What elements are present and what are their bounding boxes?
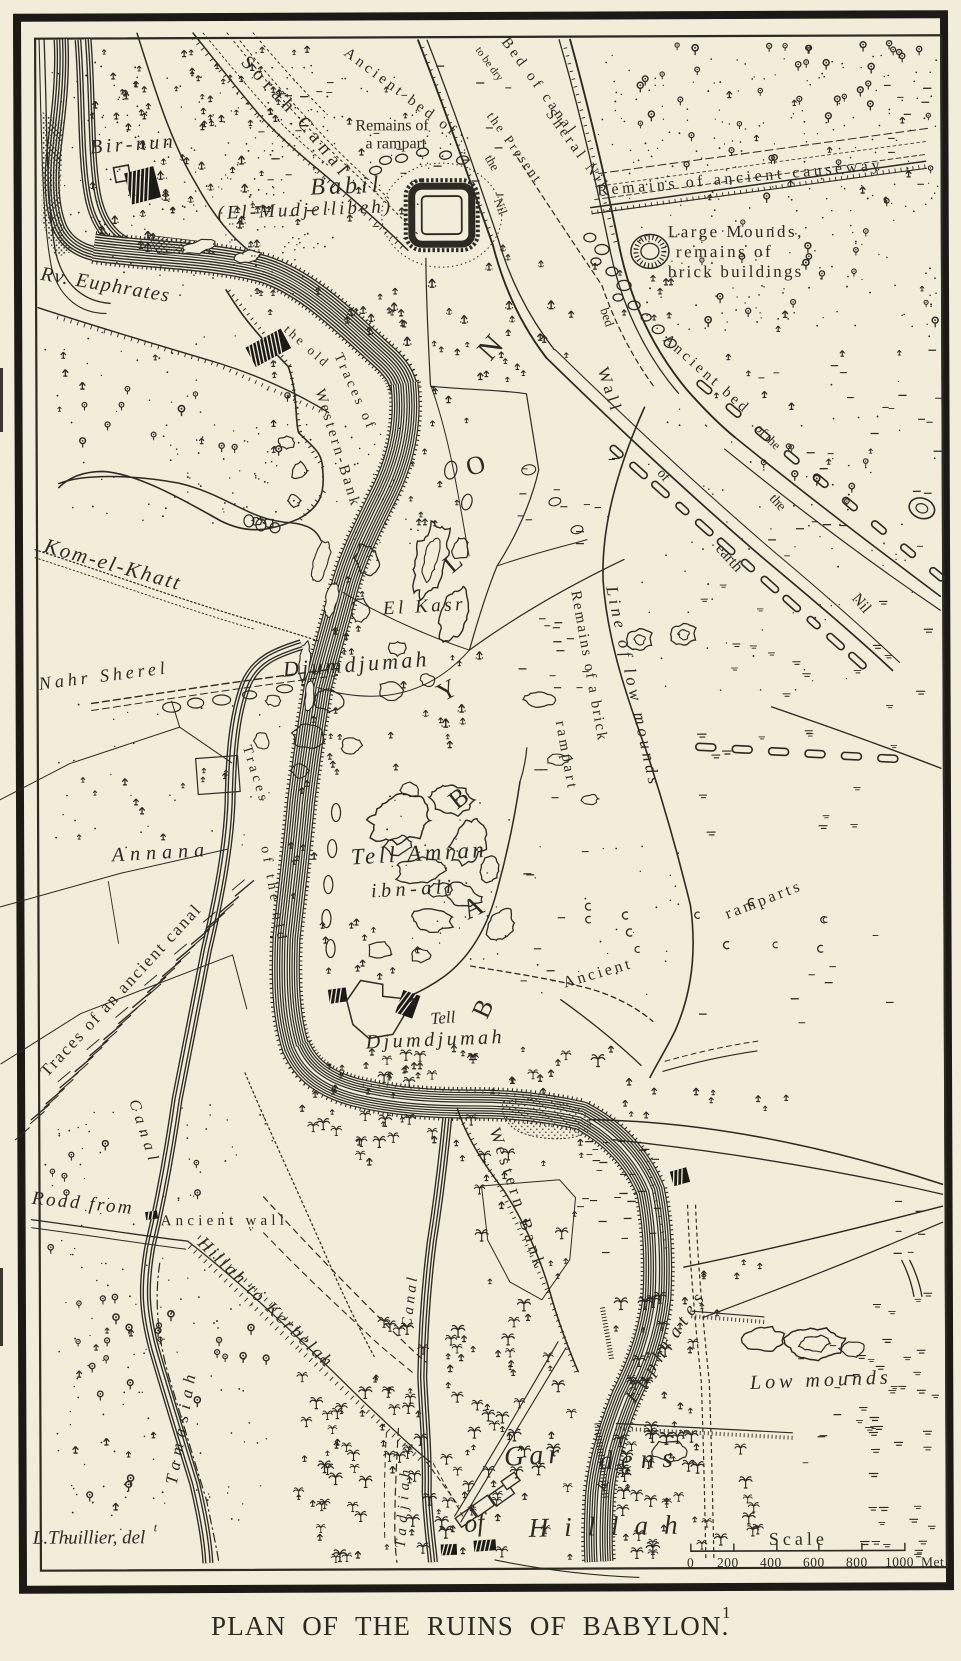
svg-text:PLAN OF THE RUINS OF BABY: PLAN OF THE RUINS OF BABYLON. [211, 1611, 730, 1641]
svg-text:a rampart: a rampart [365, 135, 426, 152]
svg-text:Remains of: Remains of [355, 117, 429, 134]
svg-text:dens: dens [599, 1442, 682, 1475]
svg-text:Tell: Tell [430, 1007, 456, 1028]
svg-text:brick buildings: brick buildings [668, 262, 804, 282]
svg-text:200: 200 [717, 1555, 739, 1570]
svg-text:400: 400 [760, 1555, 782, 1570]
svg-text:remains of: remains of [676, 242, 773, 261]
svg-text:800: 800 [846, 1555, 868, 1570]
svg-text:1000: 1000 [885, 1554, 914, 1569]
svg-text:1: 1 [722, 1603, 731, 1622]
svg-text:Gar: Gar [503, 1439, 565, 1473]
svg-text:Scale: Scale [769, 1529, 828, 1549]
svg-text:Met: Met [921, 1554, 944, 1569]
svg-text:L.Thuillier, del: L.Thuillier, del [32, 1527, 146, 1548]
svg-text:Hillah: Hillah [527, 1509, 694, 1543]
svg-text:Ancient wall: Ancient wall [161, 1213, 289, 1229]
svg-text:0: 0 [687, 1555, 694, 1570]
svg-text:600: 600 [803, 1555, 825, 1570]
